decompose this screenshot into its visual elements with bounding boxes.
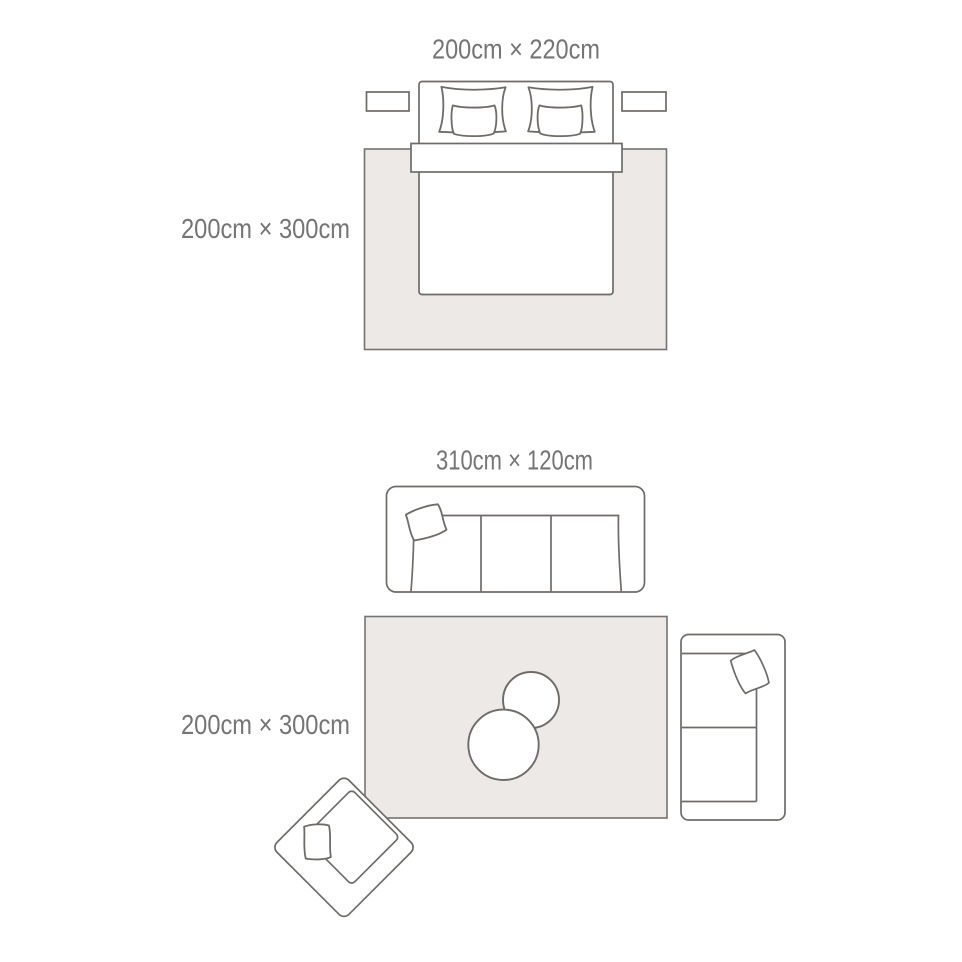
svg-text:310cm × 120cm: 310cm × 120cm — [436, 445, 593, 476]
svg-text:200cm × 220cm: 200cm × 220cm — [432, 34, 600, 65]
svg-text:200cm × 300cm: 200cm × 300cm — [181, 709, 350, 740]
svg-text:200cm × 300cm: 200cm × 300cm — [181, 213, 350, 244]
